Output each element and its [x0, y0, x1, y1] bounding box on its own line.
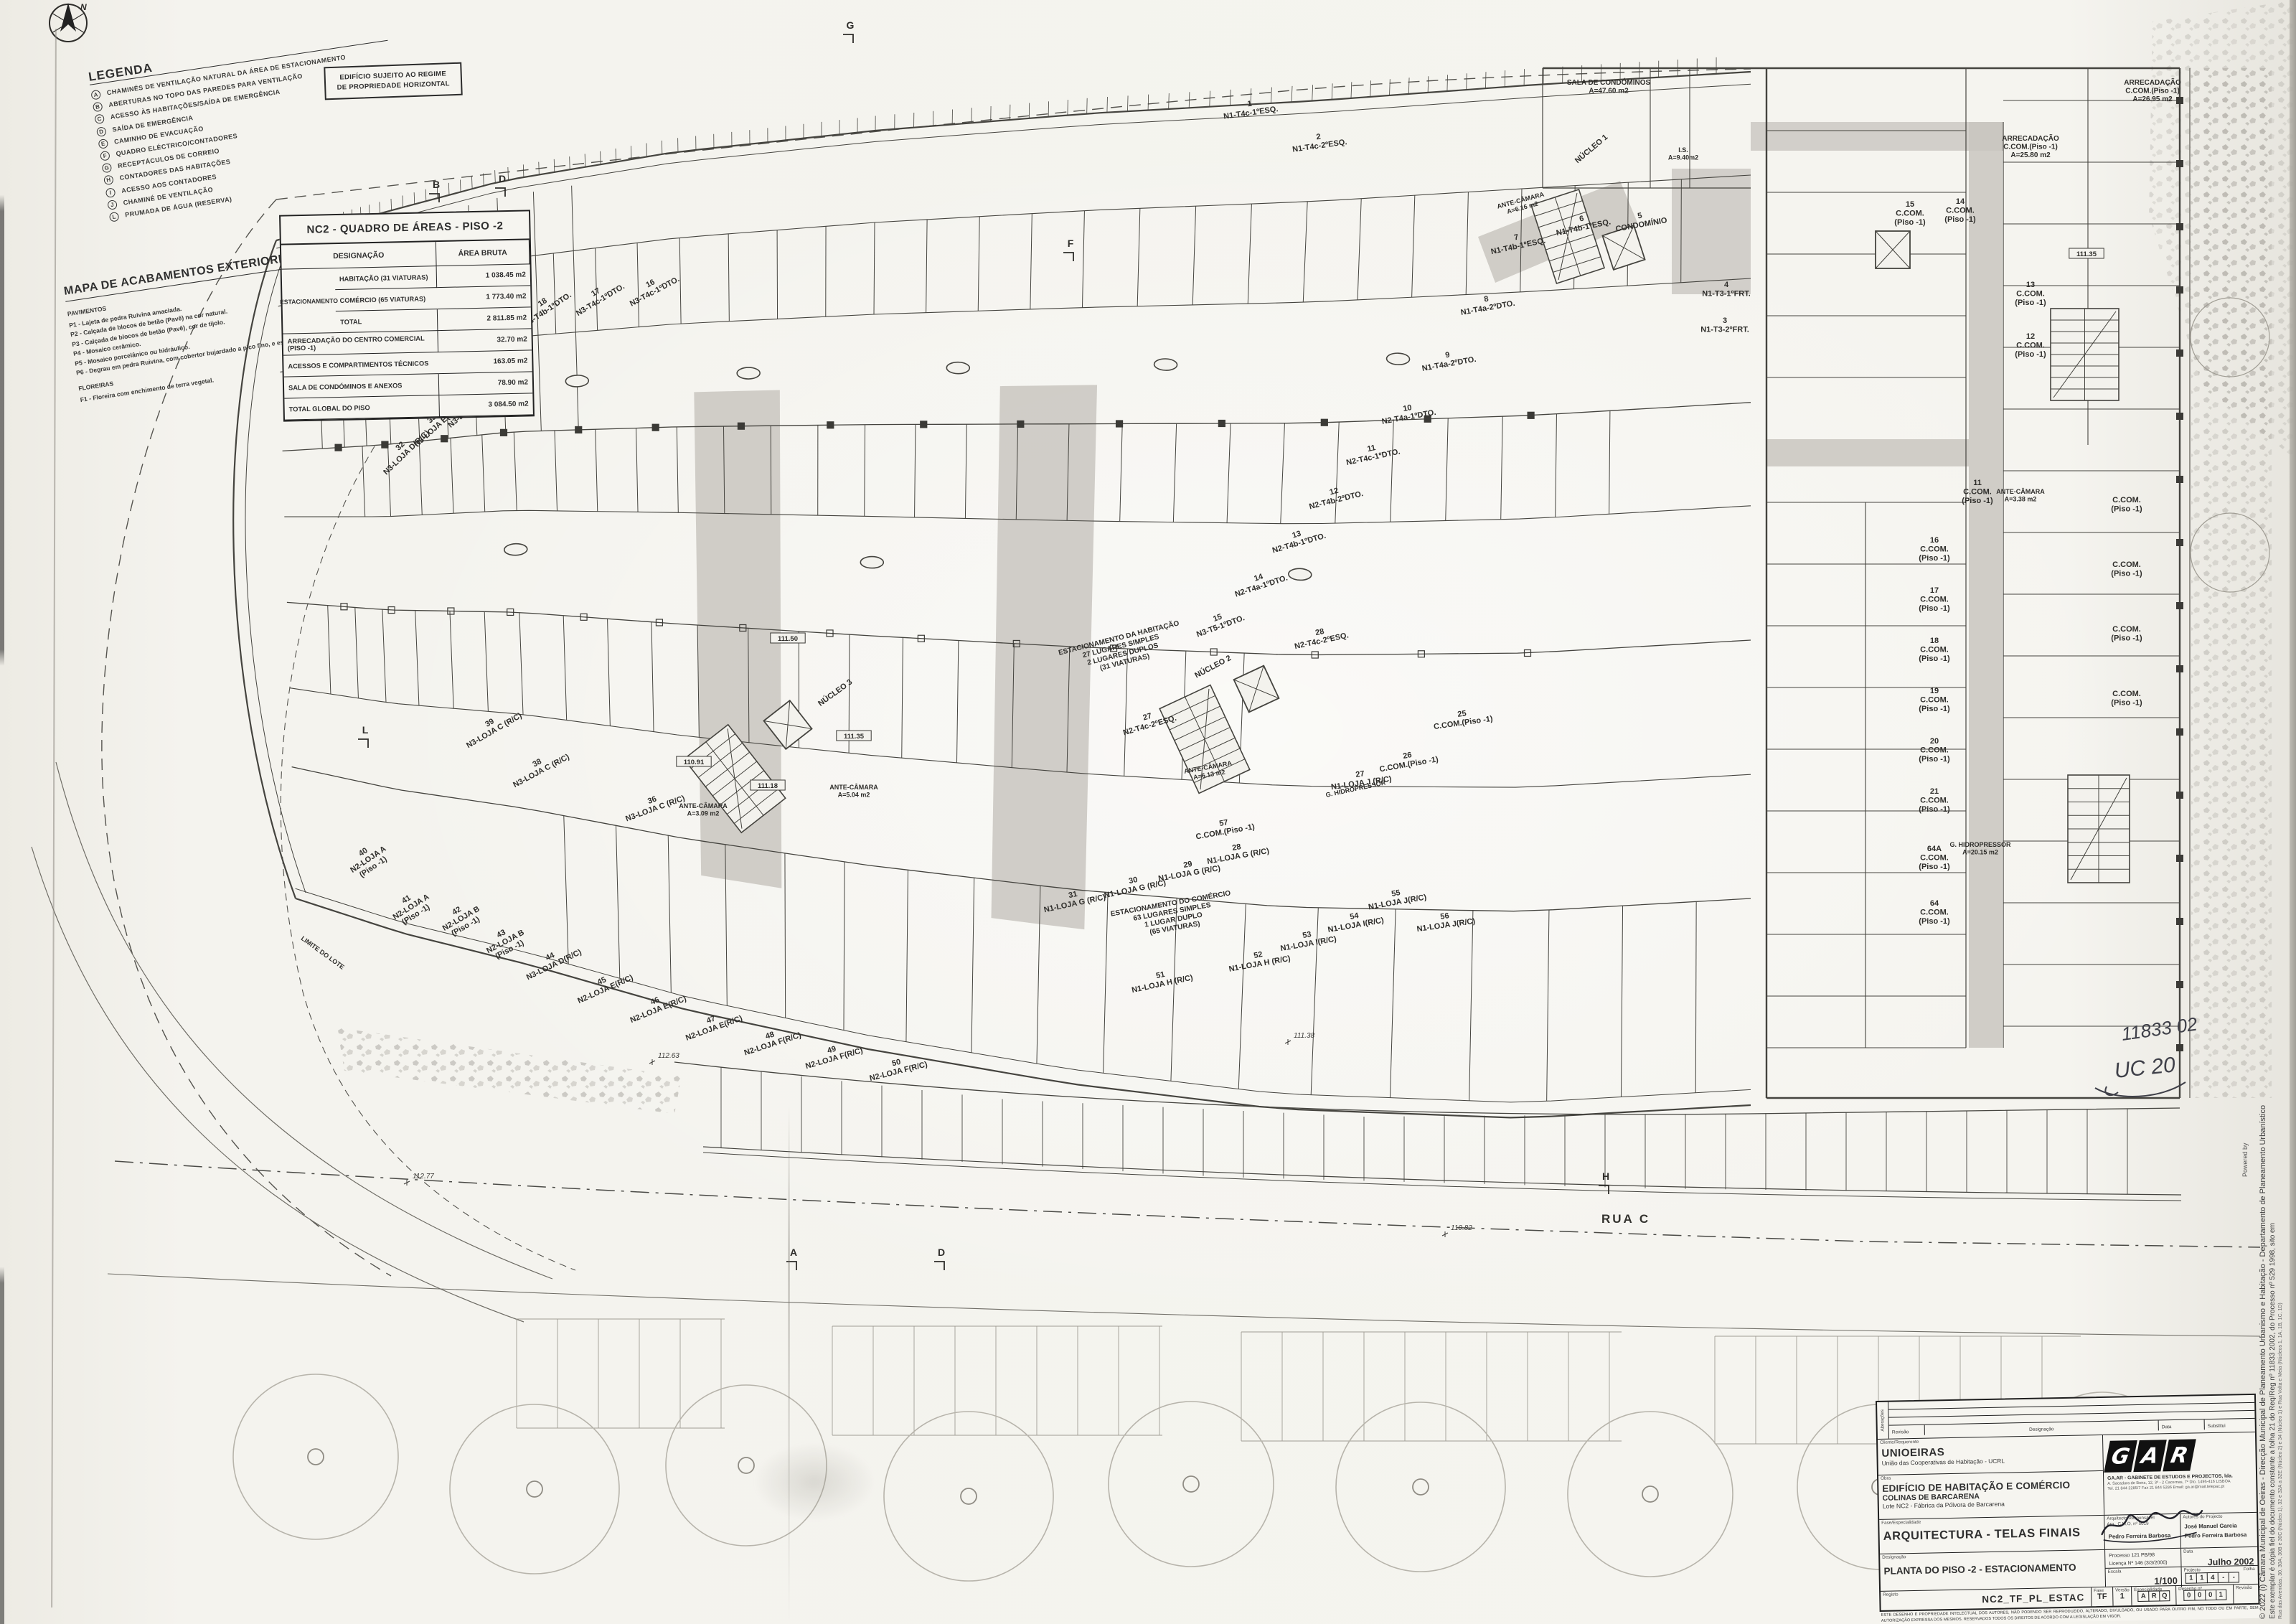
- autor-1: José Manuel Garcia: [2184, 1521, 2253, 1531]
- svg-text:111.35: 111.35: [844, 733, 865, 741]
- legend-key-icon: A: [90, 90, 101, 100]
- plan-label: 9N1-T4a-2ºDTO.: [1420, 346, 1477, 372]
- tree-canopy: [233, 1374, 398, 1539]
- gaar-logo: G A R: [2104, 1439, 2196, 1472]
- plan-label: 16C.COM.(Piso -1): [1919, 536, 1950, 563]
- svg-text:111.35: 111.35: [2076, 250, 2097, 258]
- arquitecto-ordem: Arq., C.M.O. nº 5019: [2107, 1521, 2148, 1527]
- plan-label: I.S.A=9.40m2: [1668, 146, 1698, 161]
- plan-label: 18C.COM.(Piso -1): [1919, 637, 1950, 663]
- stairs-and-lifts: [684, 189, 2130, 883]
- desenho-label: Desenho nº: [2178, 1586, 2202, 1592]
- tree-trunk: [1183, 1476, 1199, 1492]
- versao-label: Versão: [2115, 1587, 2130, 1592]
- plan-label: 44N3-LOJA D(R/C): [521, 939, 583, 982]
- plan-label: 43N2-LOJA B(Piso -1): [481, 920, 530, 963]
- table-row-value: 3 084.50 m2: [439, 393, 533, 417]
- autores-label: Autores do Projecto: [2183, 1514, 2222, 1520]
- property-regime-note: EDIFÍCIO SUJEITO AO REGIME DE PROPRIEDAD…: [324, 62, 462, 100]
- plan-label: 40N2-LOJA A(Piso -1): [344, 837, 392, 883]
- plan-label: C.COM.(Piso -1): [2111, 690, 2142, 708]
- legend-key-icon: H: [103, 175, 114, 186]
- plan-label: 46N2-LOJA E(R/C): [626, 986, 688, 1025]
- plan-label: 12N2-T4b-2ºDTO.: [1306, 481, 1364, 511]
- section-marker: D: [499, 173, 506, 184]
- plan-label: 64AC.COM.(Piso -1): [1919, 845, 1950, 871]
- elevator-icon: [1234, 666, 1279, 713]
- plan-label: SALA DE CONDÓMINOSA=47.60 m2: [1567, 78, 1651, 95]
- table-row-label: ARRECADAÇÃO DO CENTRO COMERCIAL (PISO -1…: [283, 331, 438, 356]
- versao-value: 1: [2120, 1592, 2125, 1600]
- plan-label: 26C.COM.(Piso -1): [1378, 746, 1439, 774]
- plan-label: 15C.COM.(Piso -1): [1894, 200, 1926, 227]
- folha-label: Folha: [2244, 1567, 2255, 1572]
- plan-label: 28N2-T4c-2ºESQ.: [1292, 622, 1350, 651]
- plan-label: ANTE-CÂMARAA=5.04 m2: [829, 783, 878, 799]
- table-row-value: 2 811.85 m2: [438, 307, 532, 331]
- legend-key-icon: F: [100, 151, 110, 161]
- projecto-label: Projecto: [2184, 1567, 2201, 1572]
- section-marker: D: [938, 1247, 945, 1258]
- stair-icon: [2068, 775, 2130, 883]
- table-row-value: 78.90 m2: [439, 372, 533, 395]
- registo-value: NC2_TF_PL_ESTAC: [1982, 1592, 2084, 1605]
- plan-label: 55N1-LOJA J(R/C): [1366, 884, 1427, 911]
- stamp-line2: Este exemplar é cópia fiel do documento …: [2269, 499, 2277, 1619]
- table-row-label: TOTAL GLOBAL DO PISO: [284, 395, 440, 421]
- table-row-label: COMÉRCIO (65 VIATURAS): [335, 288, 438, 311]
- fase-value: ARQUITECTURA - TELAS FINAIS: [1883, 1526, 2100, 1544]
- municipal-stamp: © 2022 (i) Câmara Municipal de Oeiras - …: [2259, 499, 2283, 1619]
- legend-key-icon: L: [109, 212, 120, 222]
- plan-label: 28N1-LOJA G (R/C): [1205, 837, 1270, 865]
- legend-key-icon: J: [107, 200, 118, 210]
- tree-canopy: [1336, 1402, 1505, 1572]
- espec-label: Especialidade: [2134, 1587, 2162, 1592]
- legend-key-icon: I: [105, 187, 116, 198]
- plan-label: 19C.COM.(Piso -1): [1919, 687, 1950, 713]
- designacao-value: PLANTA DO PISO -2 - ESTACIONAMENTO: [1883, 1562, 2101, 1577]
- scan-edge-right: [2290, 0, 2296, 1624]
- plan-label: C.COM.(Piso -1): [2111, 496, 2142, 514]
- rev-col-data: Data: [2159, 1419, 2205, 1430]
- table-row-value: 1 038.45 m2: [437, 264, 531, 288]
- plan-label: NÚCLEO 2: [1193, 653, 1233, 680]
- plan-label: 42N2-LOJA B(Piso -1): [437, 897, 486, 941]
- obra-label: Obra: [1881, 1476, 1891, 1481]
- plan-label: 32N3-LOJA D(R/C): [376, 422, 432, 477]
- section-marker: F: [1068, 238, 1074, 249]
- plan-label: G. HIDROPRESSORA=20.15 m2: [1949, 841, 2011, 856]
- svg-text:111.18: 111.18: [758, 782, 778, 790]
- plan-label: 38N3-LOJA C (R/C): [507, 744, 571, 789]
- plan-label: 20C.COM.(Piso -1): [1919, 737, 1950, 764]
- elevator-icon: [1876, 231, 1910, 268]
- plan-label: 45N2-LOJA E(R/C): [573, 965, 634, 1005]
- plan-label: NÚCLEO 1: [1573, 132, 1609, 165]
- plan-label: 12C.COM.(Piso -1): [2015, 332, 2046, 359]
- scan-edge-left: [0, 0, 4, 1624]
- legend-key-icon: G: [102, 163, 113, 174]
- table-row-label: SALA DE CONDÓMINOS E ANEXOS: [284, 374, 440, 399]
- plan-label: 49N2-LOJA F(R/C): [802, 1038, 865, 1071]
- tree-canopy: [1109, 1402, 1274, 1567]
- table-row-label: TOTAL: [336, 309, 438, 333]
- rev-col-revisao: Revisão: [1889, 1425, 1925, 1436]
- legend-key-icon: B: [93, 102, 103, 113]
- table-row-value: 1 773.40 m2: [437, 286, 531, 309]
- dimension-text: 112.77: [413, 1173, 434, 1181]
- stamp-line1: © 2022 (i) Câmara Municipal de Oeiras - …: [2259, 499, 2267, 1619]
- handwritten-note: UC 20: [2113, 1053, 2176, 1083]
- plan-label: ESTACIONAMENTO DO COMÉRCIO63 LUGARES SIM…: [1110, 888, 1236, 942]
- section-marker: G: [847, 19, 855, 31]
- street-label: RUA C: [1601, 1212, 1650, 1226]
- legend-key-icon: E: [98, 139, 108, 149]
- plan-label: 64C.COM.(Piso -1): [1919, 899, 1950, 926]
- cliente-label: Cliente/Requerente: [1880, 1440, 1919, 1445]
- plan-label: 51N1-LOJA H (R/C): [1129, 964, 1195, 995]
- plan-label: 41N2-LOJA A(Piso -1): [387, 885, 436, 929]
- escala-label: Escala: [2108, 1569, 2122, 1574]
- registo-label: Registo: [1883, 1592, 1898, 1597]
- plan-label: LIMITE DO LOTE: [300, 934, 346, 970]
- scan-smudge: [753, 1442, 875, 1521]
- data-label: Data: [2183, 1549, 2193, 1554]
- plan-label: C.COM.(Piso -1): [2111, 625, 2142, 643]
- plan-label: 25C.COM.(Piso -1): [1432, 705, 1494, 731]
- plan-label: 15N3-T5-1ºDTO.: [1192, 605, 1246, 639]
- svg-text:111.50: 111.50: [778, 635, 798, 643]
- plan-label: 13N2-T4b-1ºDTO.: [1269, 523, 1327, 555]
- stamp-line3: Rua das Avenidas, 30, 30A, 30B e 30C (Nú…: [2278, 499, 2283, 1619]
- alteracoes-label: Alterações: [1877, 1402, 1889, 1439]
- plan-label: 36N3-LOJA C (R/C): [621, 786, 686, 824]
- exterior-parking: [517, 1067, 2127, 1444]
- col-designacao: DESIGNAÇÃO: [281, 242, 437, 270]
- plan-label: 54N1-LOJA I(R/C): [1326, 907, 1385, 934]
- section-marker: H: [1602, 1170, 1609, 1182]
- rev-col-substitui: Substitui: [2205, 1419, 2255, 1430]
- area-table: NC2 - QUADRO DE ÁREAS - PISO -2 DESIGNAÇ…: [279, 210, 535, 421]
- plan-label: 13C.COM.(Piso -1): [2015, 281, 2046, 307]
- arquitecto-name: Pedro Ferreira Barbosa: [2109, 1531, 2177, 1541]
- group-estacionamento: ESTACIONAMENTO: [282, 268, 337, 334]
- col-area-bruta: ÁREA BRUTA: [436, 240, 530, 266]
- table-row-label: ACESSOS E COMPARTIMENTOS TÉCNICOS: [283, 352, 439, 377]
- fase2-value: TF: [2097, 1592, 2107, 1601]
- stair-icon: [2051, 309, 2119, 400]
- plan-label: 2N1-T4c-2ºESQ.: [1291, 129, 1347, 154]
- tree-trunk: [308, 1449, 324, 1465]
- tree-trunk: [527, 1481, 542, 1497]
- dimension-text: 111.38: [1294, 1032, 1315, 1040]
- plan-label: NÚCLEO 3: [817, 677, 855, 708]
- fase2-label: Fase: [2094, 1588, 2104, 1593]
- tree-canopy: [450, 1404, 619, 1574]
- section-marker: L: [362, 724, 369, 736]
- scanned-sheet: 1N1-T4c-1ºESQ.2N1-T4c-2ºESQ.3N1-T3-2ºFRT…: [0, 0, 2296, 1624]
- licenca: Licença Nº 146 (3/3/2000): [2109, 1559, 2177, 1567]
- section-marker: A: [790, 1247, 797, 1258]
- paper-crease: [788, 1105, 790, 1624]
- table-row-value: 163.05 m2: [438, 350, 532, 374]
- handwritten-note: 11833 02: [2120, 1013, 2199, 1045]
- table-row-label: HABITAÇÃO (31 VIATURAS): [335, 266, 438, 290]
- svg-text:110.91: 110.91: [684, 759, 705, 766]
- revisao-label: Revisão: [2236, 1585, 2252, 1590]
- tree-canopy: [1568, 1412, 1733, 1577]
- north-label: N: [80, 2, 87, 12]
- table-row-value: 32.70 m2: [438, 329, 532, 352]
- plan-label: 21C.COM.(Piso -1): [1919, 787, 1950, 814]
- dimension-text: 112.63: [658, 1052, 679, 1060]
- plan-label: 56N1-LOJA J(R/C): [1415, 908, 1476, 934]
- plan-label: 39N3-LOJA C (R/C): [461, 703, 524, 750]
- section-marker: B: [433, 179, 440, 190]
- plan-label: 17N3-T4c-1ºDTO.: [570, 275, 626, 318]
- tree-trunk: [738, 1458, 754, 1473]
- title-block: Alterações Revisão Designação Data Subst…: [1876, 1394, 2260, 1624]
- plan-label: 14N2-T4a-1ºDTO.: [1231, 565, 1289, 599]
- projecto-number: 114--: [2186, 1572, 2239, 1583]
- legend-key-icon: C: [94, 114, 105, 125]
- tree-trunk: [1642, 1486, 1658, 1502]
- plan-label: 3N1-T3-2ºFRT.: [1700, 316, 1749, 334]
- powered-by-text: Powered by: [2241, 1142, 2249, 1177]
- plan-label: C.COM.(Piso -1): [2111, 560, 2142, 578]
- legend-key-icon: D: [96, 126, 107, 137]
- autor-2: Pedro Ferreira Barbosa: [2185, 1531, 2254, 1541]
- core-corridor: [992, 385, 1098, 929]
- tree-trunk: [961, 1488, 977, 1504]
- plan-label: 17C.COM.(Piso -1): [1919, 586, 1950, 613]
- plan-label: ARRECADAÇÃOC.COM.(Piso -1)A=25.80 m2: [2002, 133, 2059, 159]
- arquitecto-label: Arquitecto Responsável: [2107, 1516, 2155, 1521]
- tree-canopy: [884, 1412, 1053, 1581]
- dimension-text: 110.82: [1451, 1224, 1472, 1232]
- designacao-label: Designação: [1882, 1554, 1906, 1560]
- plan-label: 50N2-LOJA F(R/C): [867, 1051, 928, 1083]
- tree-trunk: [1413, 1479, 1429, 1495]
- plan-label: 57C.COM.(Piso -1): [1194, 814, 1256, 842]
- handwritten-swoosh: [2095, 1082, 2186, 1097]
- fase-label: Fase/Especialidade: [1881, 1520, 1921, 1526]
- plan-label: 16N3-T4c-1ºDTO.: [624, 267, 681, 309]
